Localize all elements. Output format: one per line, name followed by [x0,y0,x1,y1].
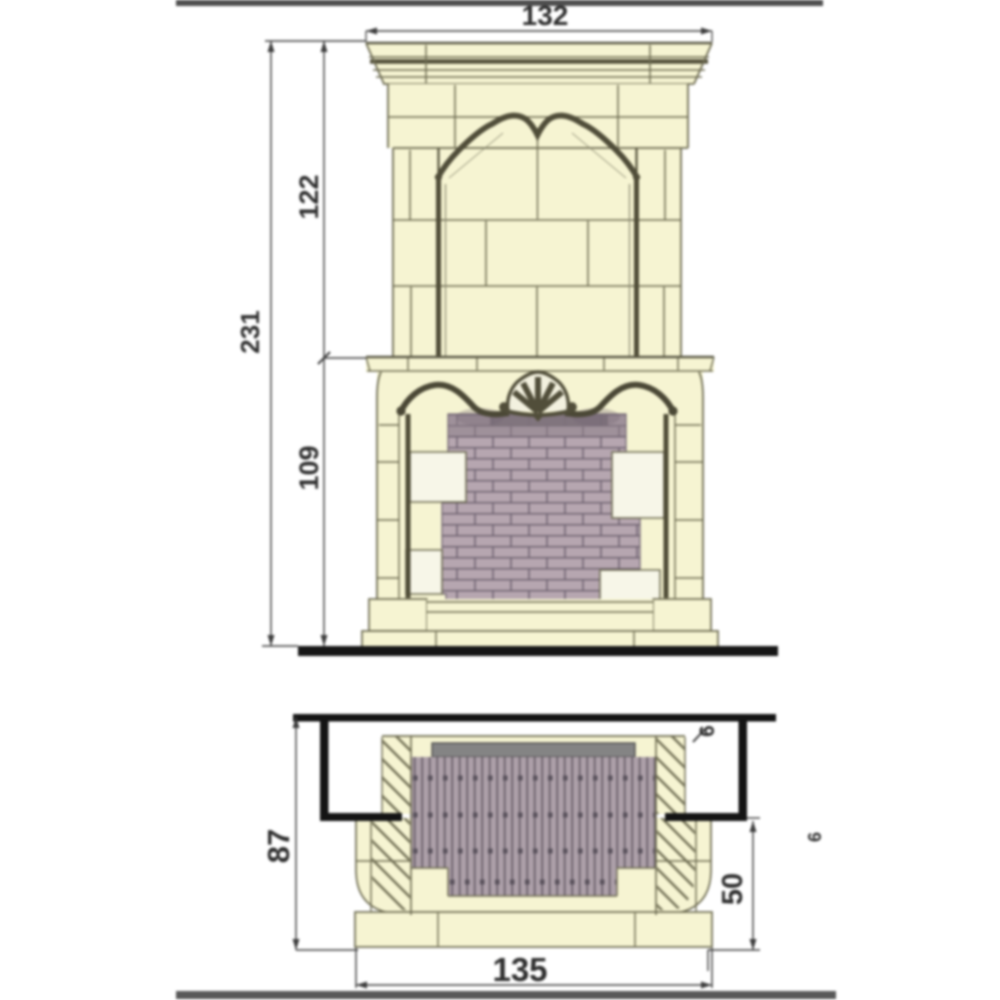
svg-text:6: 6 [805,832,825,842]
svg-text:6: 6 [696,725,719,737]
svg-text:109: 109 [294,445,324,490]
svg-text:50: 50 [717,873,749,905]
svg-text:231: 231 [235,310,265,353]
svg-text:87: 87 [261,829,296,863]
svg-text:135: 135 [492,951,547,988]
svg-text:132: 132 [522,0,569,31]
svg-text:122: 122 [294,174,324,219]
